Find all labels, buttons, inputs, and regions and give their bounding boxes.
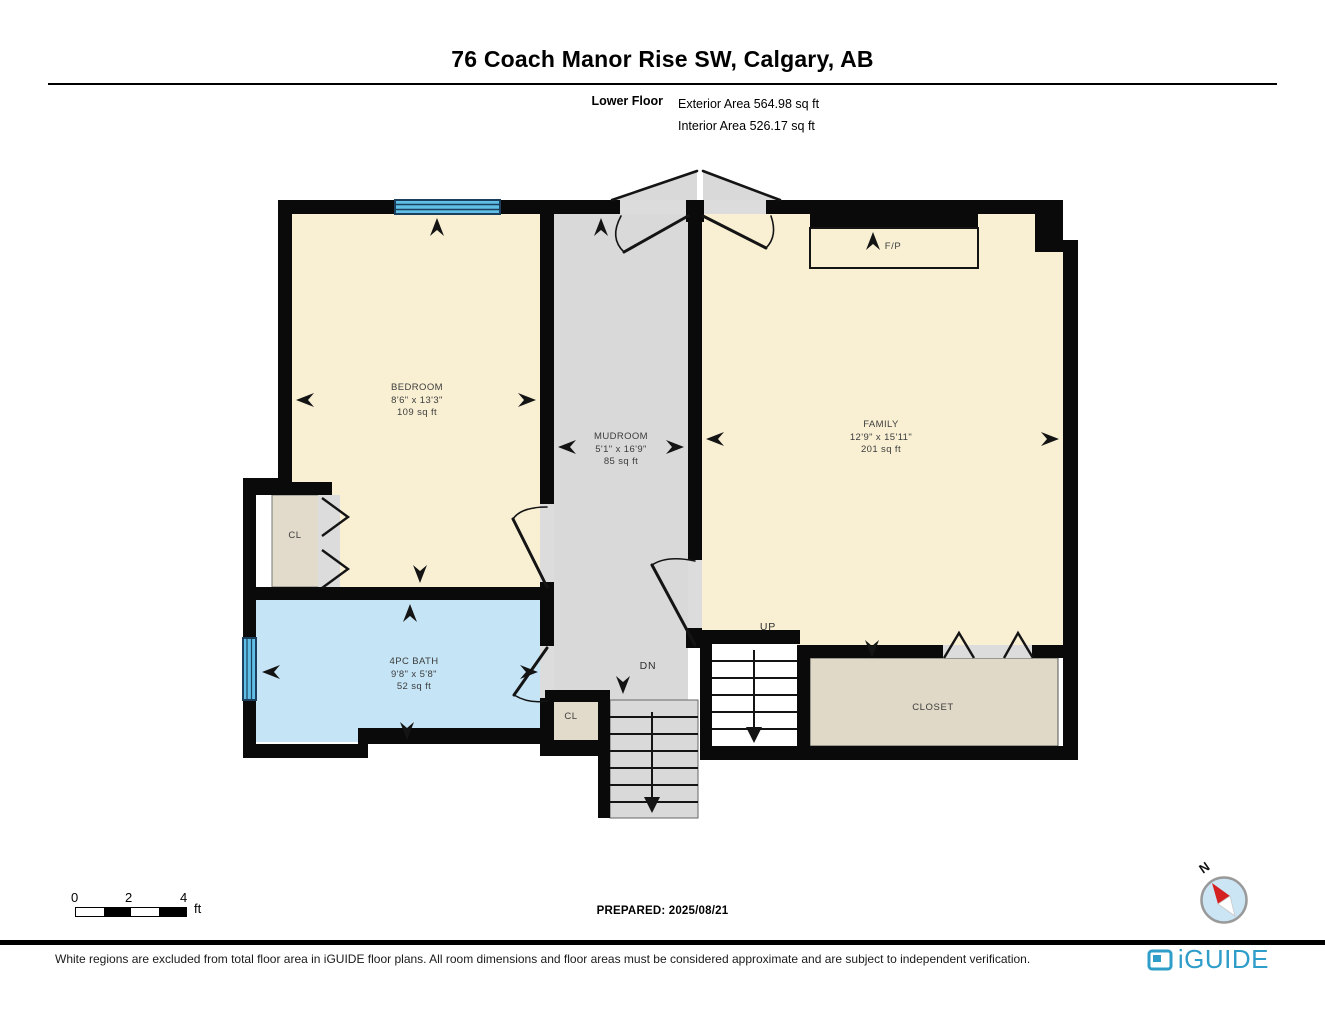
closet-label: CLOSET [912,702,954,713]
scale-tick-4: 4 [180,890,187,905]
family-label: FAMILY 12'9" x 15'11" 201 sq ft [850,419,912,457]
iguide-camera-icon [1147,948,1173,972]
footer-divider [0,940,1325,945]
disclaimer-text: White regions are excluded from total fl… [55,952,1030,966]
iguide-wordmark: iGUIDE [1178,944,1269,975]
floorplan-drawing: N [0,0,1325,1024]
iguide-logo: iGUIDE [1147,944,1269,975]
prepared-date: PREPARED: 2025/08/21 [0,905,1325,917]
scale-tick-0: 0 [71,890,78,905]
scale-tick-2: 2 [125,890,132,905]
bedroom-window-icon [395,200,500,214]
floorplan-page: 76 Coach Manor Rise SW, Calgary, AB Lowe… [0,0,1325,1024]
bedroom-closet-label: CL [288,530,301,541]
fireplace-label: F/P [885,241,902,252]
bedroom-closet-floor [272,495,320,587]
stairs-up-label: UP [760,621,776,633]
mudroom-label: MUDROOM 5'1" x 16'9" 85 sq ft [594,431,648,469]
compass-north-label: N [1196,859,1212,877]
bath-label: 4PC BATH 9'8" x 5'8" 52 sq ft [390,656,439,694]
stairs-down-label: DN [640,660,657,672]
bedroom-label: BEDROOM 8'6" x 13'3" 109 sq ft [391,382,443,420]
bath-window-icon [243,638,256,700]
stair-closet-label: CL [564,711,577,722]
